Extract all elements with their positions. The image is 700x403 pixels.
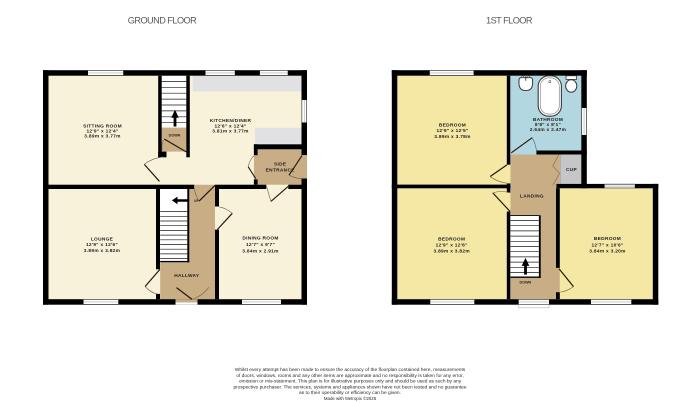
svg-text:DOWN: DOWN (520, 280, 532, 284)
svg-text:CUP: CUP (566, 167, 578, 173)
svg-text:BEDROOM: BEDROOM (438, 237, 465, 243)
svg-text:3.81m x 3.77m: 3.81m x 3.77m (212, 129, 248, 135)
svg-text:LANDING: LANDING (520, 194, 544, 200)
svg-text:12'7" x 10'6": 12'7" x 10'6" (591, 242, 623, 248)
svg-text:12'9" x 12'6": 12'9" x 12'6" (86, 242, 118, 248)
svg-text:12'9" x 12'5": 12'9" x 12'5" (436, 128, 468, 134)
svg-text:of doors, windows, rooms and a: of doors, windows, rooms and any other i… (236, 373, 464, 379)
svg-text:3.84m x 2.91m: 3.84m x 2.91m (242, 249, 278, 255)
svg-text:HALLWAY: HALLWAY (174, 273, 200, 279)
svg-text:3.84m x 3.20m: 3.84m x 3.20m (589, 249, 625, 255)
svg-text:ENTRANCE: ENTRANCE (266, 167, 296, 173)
svg-text:3.89m x 3.77m: 3.89m x 3.77m (84, 133, 120, 139)
svg-text:BEDROOM: BEDROOM (594, 236, 621, 242)
svg-text:3.89m x 3.82m: 3.89m x 3.82m (433, 249, 469, 255)
svg-text:BEDROOM: BEDROOM (439, 123, 466, 129)
svg-text:3.89m x 3.82m: 3.89m x 3.82m (84, 248, 120, 254)
svg-text:SITTING ROOM: SITTING ROOM (83, 123, 122, 129)
svg-text:KITCHEN/DINER: KITCHEN/DINER (210, 118, 252, 124)
svg-text:12'6" x 12'4": 12'6" x 12'4" (214, 123, 246, 129)
svg-text:prospective purchaser. The ser: prospective purchaser. The services, sys… (233, 384, 466, 390)
svg-text:LOUNGE: LOUNGE (91, 236, 114, 242)
svg-text:GROUND FLOOR: GROUND FLOOR (128, 15, 197, 25)
svg-text:12'7" x 9'7": 12'7" x 9'7" (246, 242, 275, 248)
svg-text:omission or mis-statement. Thi: omission or mis-statement. This plan is … (239, 379, 462, 385)
svg-text:SIDE: SIDE (274, 161, 287, 167)
svg-text:8'8" x 8'1": 8'8" x 8'1" (535, 122, 561, 128)
svg-text:Whilst every attempt has been: Whilst every attempt has been made to en… (235, 367, 466, 373)
svg-text:Made with Metropix ©2025: Made with Metropix ©2025 (324, 396, 377, 401)
svg-text:2.64m x 2.47m: 2.64m x 2.47m (530, 127, 566, 133)
svg-text:1ST FLOOR: 1ST FLOOR (486, 15, 533, 25)
svg-text:3.89m x 3.78m: 3.89m x 3.78m (434, 134, 470, 140)
svg-text:12'9" x 12'6": 12'9" x 12'6" (436, 243, 468, 249)
svg-text:DINING ROOM: DINING ROOM (242, 236, 278, 242)
svg-text:DOWN: DOWN (169, 134, 181, 138)
